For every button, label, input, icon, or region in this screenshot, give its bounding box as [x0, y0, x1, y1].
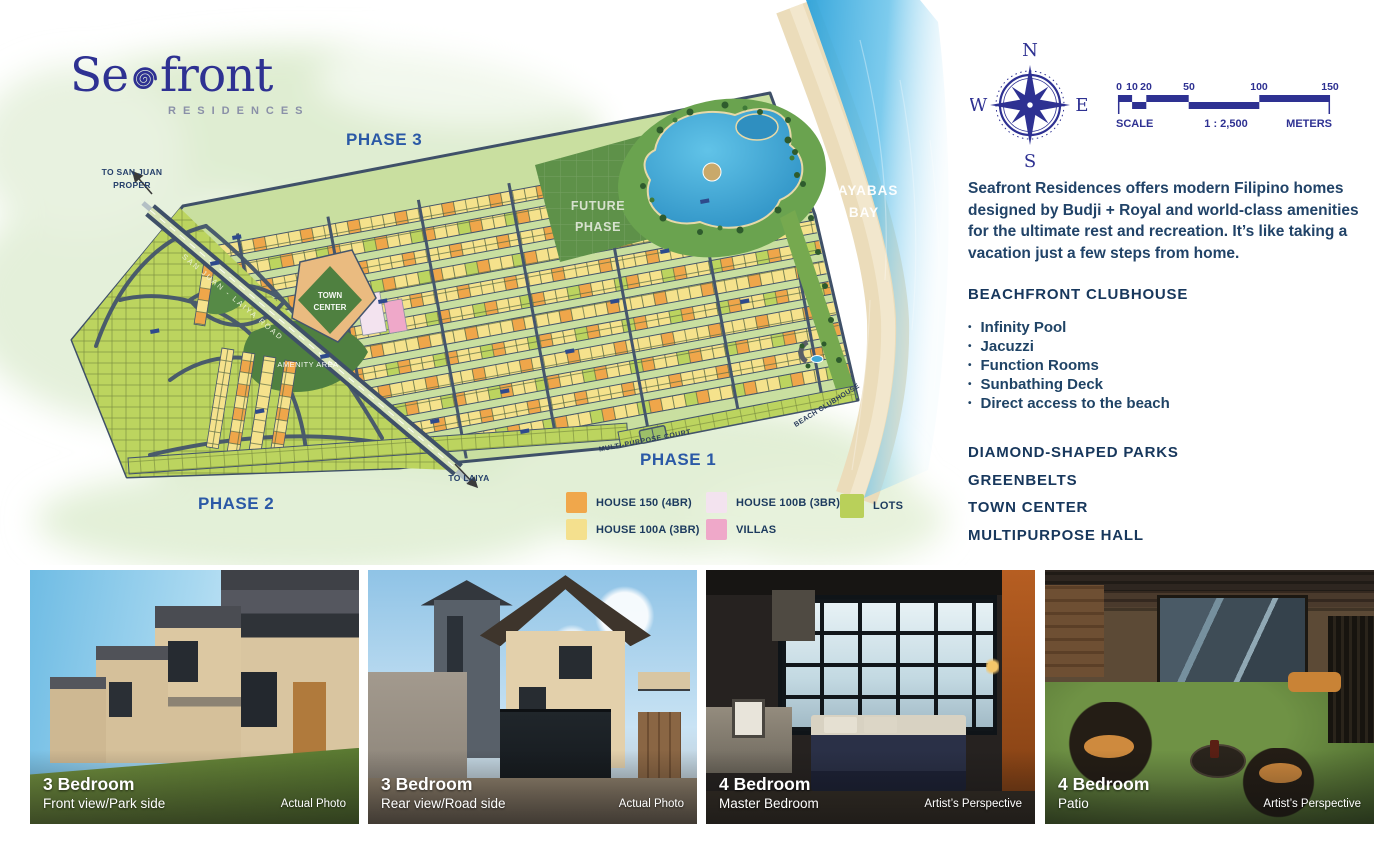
photo-subtitle: Rear view/Road side — [381, 795, 506, 813]
legend-item-lots: LOTS — [840, 494, 903, 518]
photo2-window — [559, 646, 592, 679]
photo-title: 4 Bedroom — [719, 774, 819, 795]
scale-bar-graphic — [1118, 95, 1330, 114]
photo1-door — [293, 682, 326, 758]
amenity-label: Function Rooms — [981, 356, 1099, 375]
scale-tick-100: 100 — [1250, 81, 1268, 93]
legend-label-house100b: HOUSE 100B (3BR) — [736, 497, 840, 509]
photo-caption: 3 Bedroom Front view/Park side — [43, 774, 165, 813]
bullet-icon: • — [968, 337, 972, 356]
photo-title: 4 Bedroom — [1058, 774, 1149, 795]
legend-swatch-house100b — [706, 492, 727, 513]
legend-label-house150: HOUSE 150 (4BR) — [596, 497, 692, 509]
compass-graphic — [990, 65, 1070, 145]
photo-subtitle: Front view/Park side — [43, 795, 165, 813]
scale-tick-150: 150 — [1321, 81, 1339, 93]
legend-swatch-lots — [840, 494, 864, 518]
scale-tick-0: 0 — [1116, 81, 1122, 93]
photo-subtitle: Master Bedroom — [719, 795, 819, 813]
bullet-icon: • — [968, 375, 972, 394]
legend-label-villas: VILLAS — [736, 524, 776, 536]
project-description: Seafront Residences offers modern Filipi… — [968, 178, 1370, 264]
photo3-framed-art — [732, 699, 764, 738]
photo1-building-left — [96, 646, 168, 763]
compass-rose: N E S W — [970, 38, 1090, 170]
legend-swatch-house150 — [566, 492, 587, 513]
feature-label: DIAMOND-SHAPED PARKS — [968, 439, 1370, 467]
logo-text-front: front — [160, 48, 272, 103]
photo-credit: Artist’s Perspective — [924, 798, 1022, 810]
bullet-icon: • — [968, 356, 972, 375]
map-label-tayabas-bay: TAYABAS BAY — [822, 180, 906, 225]
legend-swatch-house100a — [566, 519, 587, 540]
photo3-curtain — [772, 590, 815, 641]
legend-item-house150: HOUSE 150 (4BR) — [566, 492, 692, 513]
compass-s: S — [1024, 151, 1036, 170]
list-item: •Infinity Pool — [968, 318, 1370, 337]
photo-title: 3 Bedroom — [381, 774, 506, 795]
feature-headings: DIAMOND-SHAPED PARKS GREENBELTS TOWN CEN… — [968, 439, 1370, 549]
photo-4br-master-bedroom: 4 Bedroom Master Bedroom Artist’s Perspe… — [706, 570, 1035, 824]
photo4-wood-wall — [1045, 585, 1104, 676]
photo4-glass-wall — [1157, 595, 1308, 692]
photo-title: 3 Bedroom — [43, 774, 165, 795]
photo1-window — [237, 672, 276, 728]
map-legend: HOUSE 150 (4BR) HOUSE 100A (3BR) HOUSE 1… — [566, 490, 956, 550]
photo1-window — [168, 641, 198, 682]
photo3-pillow — [824, 717, 857, 732]
brochure-page: PHASE 3 PHASE 2 PHASE 1 FUTURE PHASE TAY… — [0, 0, 1400, 850]
logo-subtitle: RESIDENCES — [168, 105, 340, 117]
photo-caption: 3 Bedroom Rear view/Road side — [381, 774, 506, 813]
seafront-logo: Sefront RESIDENCES — [70, 52, 340, 117]
map-label-amenity-area: AMENITY AREA — [265, 360, 351, 369]
list-item: •Jacuzzi — [968, 337, 1370, 356]
map-label-future-phase: FUTURE PHASE — [560, 196, 636, 237]
bullet-icon: • — [968, 394, 972, 413]
list-item: •Direct access to the beach — [968, 394, 1370, 413]
photo-caption: 4 Bedroom Patio — [1058, 774, 1149, 813]
legend-label-lots: LOTS — [873, 500, 903, 512]
spiral-a-icon — [129, 64, 159, 94]
photo3-lamp-glow — [986, 656, 999, 676]
scale-bar: 0 10 20 50 100 150 SCALE 1 : 2,500 METER… — [1112, 80, 1340, 134]
legend-label-house100a: HOUSE 100A (3BR) — [596, 524, 700, 536]
list-item: •Function Rooms — [968, 356, 1370, 375]
list-item: •Sunbathing Deck — [968, 375, 1370, 394]
map-label-to-laiya: TO LAIYA — [438, 472, 500, 485]
feature-label: GREENBELTS — [968, 467, 1370, 495]
legend-swatch-villas — [706, 519, 727, 540]
amenity-label: Direct access to the beach — [981, 394, 1170, 413]
legend-item-villas: VILLAS — [706, 519, 776, 540]
map-label-town-center: TOWN CENTER — [302, 290, 358, 313]
photo-credit: Actual Photo — [281, 798, 346, 810]
map-label-phase2: PHASE 2 — [198, 494, 274, 514]
photo-credit: Actual Photo — [619, 798, 684, 810]
feature-label: TOWN CENTER — [968, 494, 1370, 522]
scale-meters: METERS — [1286, 118, 1332, 130]
photo1-building-right — [221, 570, 359, 768]
photo3-pillow — [864, 717, 897, 732]
scale-tick-50: 50 — [1183, 81, 1195, 93]
scale-tick-20: 20 — [1140, 81, 1152, 93]
photo-3br-front: 3 Bedroom Front view/Park side Actual Ph… — [30, 570, 359, 824]
logo-wordmark: Sefront — [70, 52, 340, 99]
photo-credit: Artist’s Perspective — [1263, 798, 1361, 810]
photo-4br-patio: 4 Bedroom Patio Artist’s Perspective — [1045, 570, 1374, 824]
clubhouse-amenities-list: •Infinity Pool •Jacuzzi •Function Rooms … — [968, 318, 1370, 413]
clubhouse-heading: BEACHFRONT CLUBHOUSE — [968, 286, 1370, 303]
photo-3br-rear: 3 Bedroom Rear view/Road side Actual Pho… — [368, 570, 697, 824]
map-label-to-san-juan: TO SAN JUAN PROPER — [92, 166, 172, 192]
compass-w: W — [970, 95, 988, 116]
logo-text-se: Se — [70, 48, 128, 103]
map-label-phase1: PHASE 1 — [640, 450, 716, 470]
legend-item-house100a: HOUSE 100A (3BR) — [566, 519, 700, 540]
photo3-ceiling — [706, 570, 1035, 595]
compass-e: E — [1075, 95, 1088, 116]
feature-label: MULTIPURPOSE HALL — [968, 522, 1370, 550]
map-label-phase3: PHASE 3 — [346, 130, 422, 150]
amenity-label: Sunbathing Deck — [981, 375, 1104, 394]
photo1-window — [109, 682, 132, 718]
photo2-balcony — [638, 672, 691, 692]
photo4-lounger — [1288, 672, 1341, 692]
amenity-label: Jacuzzi — [981, 337, 1034, 356]
scale-ratio: 1 : 2,500 — [1204, 118, 1247, 130]
legend-item-house100b: HOUSE 100B (3BR) — [706, 492, 840, 513]
compass-n: N — [1022, 40, 1038, 61]
photo-caption: 4 Bedroom Master Bedroom — [719, 774, 819, 813]
amenity-label: Infinity Pool — [981, 318, 1067, 337]
scale-label: SCALE — [1116, 118, 1153, 130]
info-panel: Seafront Residences offers modern Filipi… — [968, 178, 1370, 549]
photo-subtitle: Patio — [1058, 795, 1149, 813]
bullet-icon: • — [968, 318, 972, 337]
scale-tick-10: 10 — [1126, 81, 1138, 93]
